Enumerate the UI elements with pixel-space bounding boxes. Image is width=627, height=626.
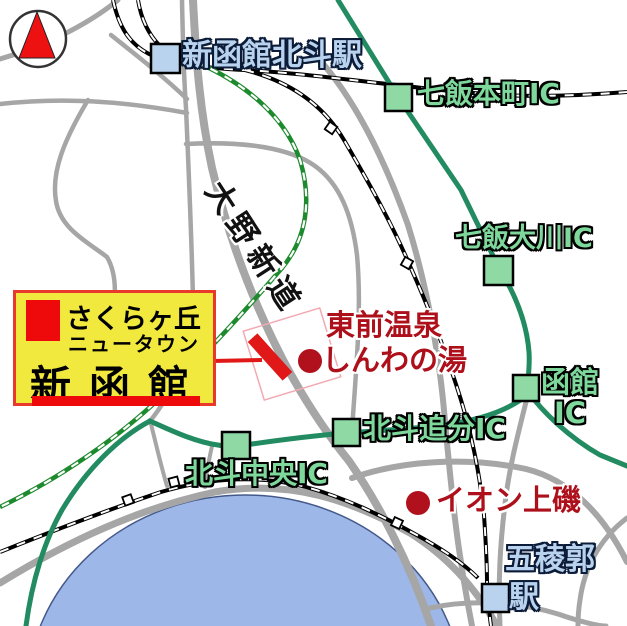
map-canvas: 新函館北斗駅 七飯本町IC 七飯大川IC 函館 IC 北斗追分IC 北斗中央IC… [0, 0, 627, 626]
marker-hokuto-oiwake-ic [333, 419, 360, 446]
callout-underline [32, 396, 200, 406]
north-compass-icon [10, 11, 66, 67]
label-hakodate-ic-line1: 函館 [541, 367, 599, 397]
callout-leader-line [212, 360, 262, 361]
label-nanae-okawa-ic: 七飯大川IC [455, 225, 593, 253]
callout-red-square-icon [26, 300, 60, 341]
label-goryokaku-station-line2: 駅 [509, 582, 539, 614]
label-goryokaku-station-line1: 五稜郭 [505, 544, 595, 576]
marker-hakodate-ic [513, 375, 539, 401]
marker-nanae-okawa-ic [484, 256, 513, 285]
marker-goryokaku-station [482, 584, 509, 612]
marker-nanae-honcho-ic [385, 84, 412, 111]
marker-hokuto-chuo-ic [222, 432, 250, 459]
callout-shin-hakodate: さくらヶ丘 ニュータウン 新函館 [13, 290, 216, 406]
label-hakodate-ic-line2: IC [554, 398, 586, 428]
marker-tozen-onsen [298, 349, 322, 373]
label-shin-hakodate-hokuto-station: 新函館北斗駅 [182, 40, 362, 72]
label-hokuto-chuo-ic: 北斗中央IC [185, 459, 328, 488]
marker-aeon-kamiiso [406, 491, 430, 515]
label-tozen-onsen-line1: 東前温泉 [326, 310, 442, 340]
label-hokuto-oiwake-ic: 北斗追分IC [363, 414, 506, 443]
label-aeon-kamiiso: イオン上磯 [436, 485, 581, 515]
marker-shin-hakodate-hokuto-station [151, 44, 180, 73]
label-nanae-honcho-ic: 七飯本町IC [417, 79, 560, 108]
label-tozen-onsen-line2: しんわの湯 [322, 345, 467, 375]
